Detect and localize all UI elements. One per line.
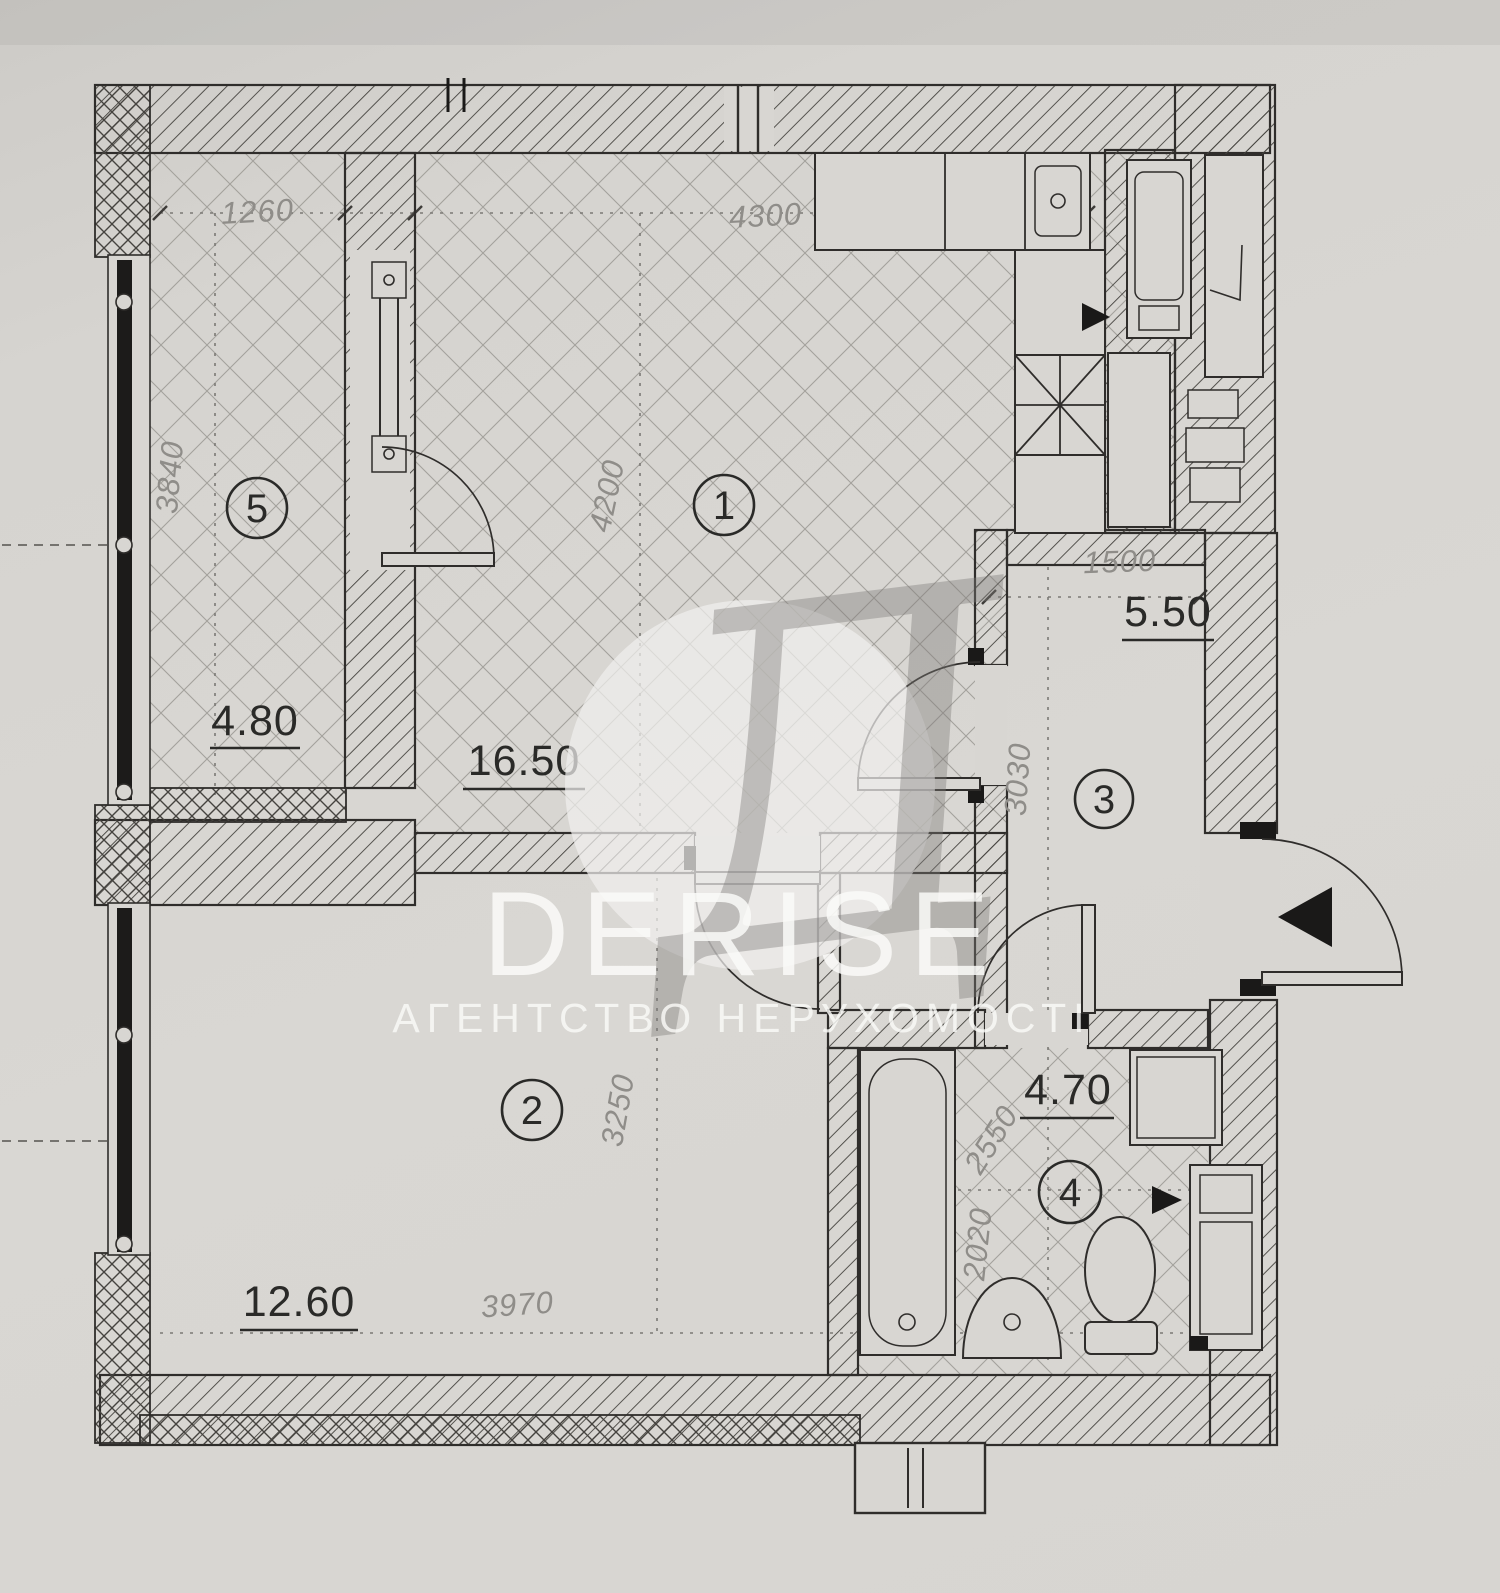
dim-room2-depth: 3250 — [594, 1071, 641, 1149]
watermark-brand: DERISE — [483, 867, 1002, 1001]
plumbing-riser — [1190, 1165, 1262, 1350]
kitchen-fridge — [1108, 353, 1170, 527]
entrance-arrow-icon — [1278, 887, 1332, 947]
floor-plan-svg: 1260 4300 3840 4200 1500 3030 3250 3970 … — [0, 0, 1500, 1593]
washing-machine — [1130, 1050, 1222, 1145]
window-left-balcony — [108, 255, 150, 805]
room-2-area: 12.60 — [243, 1278, 356, 1326]
dim-top-width: 4300 — [728, 196, 803, 235]
bathtub — [860, 1050, 955, 1355]
room-3-number: 3 — [1093, 778, 1115, 822]
dim-balcony-width: 1260 — [220, 192, 295, 231]
balcony-door-leaf — [382, 553, 494, 566]
dim-room2-width: 3970 — [480, 1285, 555, 1325]
room-5-number: 5 — [246, 487, 268, 531]
toilet — [1085, 1217, 1157, 1354]
window-left-room2 — [108, 903, 150, 1255]
photo-shadow-top — [0, 0, 1500, 45]
kitchen-appliance-column — [1127, 160, 1191, 338]
floor-plan-photo: 1260 4300 3840 4200 1500 3030 3250 3970 … — [0, 0, 1500, 1593]
room-2-number: 2 — [521, 1089, 543, 1133]
room-4-number: 4 — [1059, 1171, 1081, 1215]
watermark-subtitle: АГЕНТСТВО НЕРУХОМОСТІ — [392, 995, 1091, 1041]
room-1-area: 16.50 — [468, 737, 581, 785]
room-4-area: 4.70 — [1024, 1066, 1112, 1114]
dim-hall-width: 1500 — [1083, 543, 1157, 581]
dim-balcony-depth: 3840 — [149, 439, 190, 515]
room-3-area: 5.50 — [1124, 588, 1212, 636]
bottom-wall-notch — [855, 1443, 985, 1513]
kitchen-stove — [1015, 355, 1105, 533]
room-5-area: 4.80 — [211, 697, 299, 745]
entrance-door — [1200, 822, 1402, 996]
